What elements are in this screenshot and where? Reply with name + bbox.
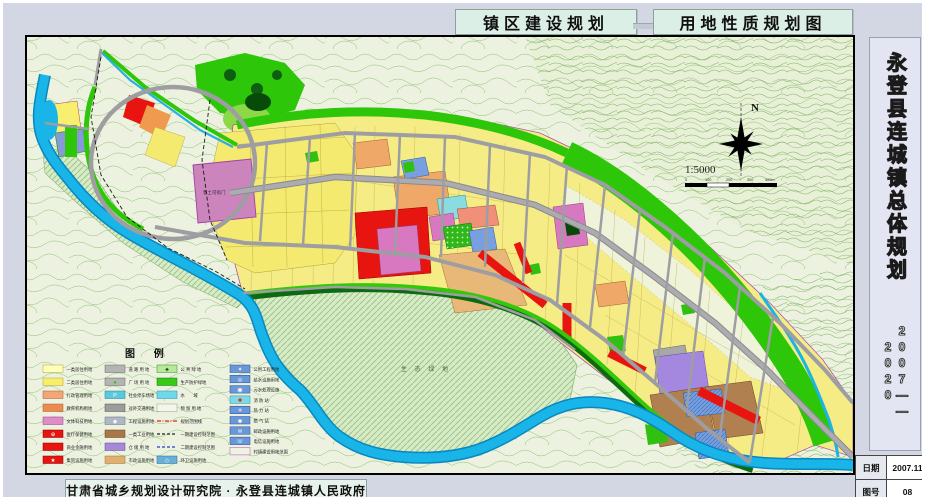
legend-entry: 生产防护绿地 xyxy=(157,378,207,386)
legend-label: 一类工业用地 xyxy=(129,431,155,438)
legend-label: 商业金融用地 xyxy=(67,444,93,451)
scale-tick: 400m xyxy=(765,178,775,182)
legend-label: 文体科技用地 xyxy=(67,418,93,425)
legend-label: 公 共 绿 地 xyxy=(181,366,202,373)
legend-entry: ✚消 防 站 xyxy=(230,396,269,404)
legend-swatch xyxy=(43,404,63,412)
legend-entry: 一类工业用地 xyxy=(105,430,155,438)
legend-swatch xyxy=(105,456,125,464)
legend-label: 行政管理用地 xyxy=(67,392,93,399)
legend-swatch-symbol: ⊕ xyxy=(51,432,56,438)
legend-swatch-symbol: ♣ xyxy=(165,367,169,373)
sheet-years-vertical: 2007——2020 xyxy=(881,299,909,444)
legend-label: 燃 气 站 xyxy=(254,418,270,425)
legend-title: 图 例 xyxy=(125,347,172,360)
legend-label: 电信设施用地 xyxy=(254,438,280,445)
legend-entry: 文体科技用地 xyxy=(43,417,93,425)
sheet-title-vertical: 永登县连城镇总体规划 xyxy=(881,43,910,291)
north-label: N xyxy=(751,102,759,114)
planning-map: 鲁土司衙门 xyxy=(27,37,853,473)
legend-label: 水 域 xyxy=(181,392,199,398)
sheet-number-label: 图号 xyxy=(856,480,886,500)
legend-entry: ✦公用工程用地 xyxy=(230,365,280,373)
legend-entry: ◉燃 气 站 xyxy=(230,417,269,425)
legend-label: 工程设施用地 xyxy=(129,418,155,425)
legend-swatch-symbol: ✉ xyxy=(238,429,243,435)
legend-label: 对外交通用地 xyxy=(129,405,155,412)
legend-label: 环卫设施用地 xyxy=(181,457,207,464)
legend-entry: 商业金融用地 xyxy=(43,443,93,451)
legend-swatch-symbol: ✚ xyxy=(238,397,243,404)
legend-label: 生产防护绿地 xyxy=(181,379,207,386)
legend-entry: ◇环卫设施用地 xyxy=(157,456,207,464)
scale-tick: 0 xyxy=(685,178,687,182)
legend-entry: ◎给水设施用地 xyxy=(230,375,280,383)
legend-label: 教育机构用地 xyxy=(67,405,93,412)
map-frame: 鲁土司衙门 xyxy=(25,35,855,475)
legend-entry: P社会停车场地 xyxy=(105,391,155,399)
legend-label: 公用工程用地 xyxy=(254,366,280,373)
legend-label: 道 路 用 地 xyxy=(129,366,150,373)
scale-text: 1:5000 xyxy=(685,164,716,176)
legend-swatch xyxy=(105,365,125,373)
legend-entry: 教育机构用地 xyxy=(43,404,93,412)
legend-label: 一类居住用地 xyxy=(67,366,93,373)
legend-swatch xyxy=(43,443,63,451)
legend-swatch-symbol: ▣ xyxy=(237,388,243,394)
legend-swatch xyxy=(157,404,177,412)
eco-green-label: 生 态 绿 地 xyxy=(401,365,451,373)
legend-label: 市政设施用地 xyxy=(129,457,155,464)
date-value: 2007.11 xyxy=(887,456,925,479)
legend-swatch-symbol: ● xyxy=(113,380,116,386)
legend-entry: ⊕医疗保健用地 xyxy=(43,430,93,438)
legend-label: 集贸设施用地 xyxy=(67,457,93,464)
legend-entry: 二类居住用地 xyxy=(43,378,93,386)
legend-label: 消 防 站 xyxy=(254,397,270,404)
title-box-landuse-plan: 用地性质规划图 xyxy=(653,9,853,35)
legend-entry: 行政管理用地 xyxy=(43,391,93,399)
legend-label: 污水处理设施 xyxy=(254,387,280,394)
legend-entry: ✳热 力 站 xyxy=(230,406,269,414)
legend-label: 邮政设施用地 xyxy=(254,428,280,435)
legend-swatch xyxy=(105,430,125,438)
scale-tick: 100 xyxy=(705,178,711,182)
plan-sheet: 镇区建设规划 用地性质规划图 xyxy=(0,0,925,500)
legend-entry: 对外交通用地 xyxy=(105,404,155,412)
legend-swatch-symbol: ✳ xyxy=(238,407,243,414)
legend-entry: 市政设施用地 xyxy=(105,456,155,464)
legend-label: 广 场 用 地 xyxy=(129,379,150,386)
date-label: 日期 xyxy=(856,456,886,479)
legend-swatch xyxy=(43,417,63,425)
legend-label: 社会停车场地 xyxy=(129,392,155,399)
title-block-table: 日期 2007.11 图号 08 xyxy=(855,455,925,500)
legend-swatch xyxy=(43,391,63,399)
legend-label: 热 力 站 xyxy=(254,407,270,414)
legend-swatch xyxy=(230,447,250,455)
legend-swatch xyxy=(43,378,63,386)
legend-label: 给水设施用地 xyxy=(254,376,280,383)
legend-swatch-symbol: ★ xyxy=(51,457,56,464)
scale-tick: 200 xyxy=(726,178,732,182)
title-box-construction-plan: 镇区建设规划 xyxy=(455,9,637,35)
legend-label: 二期建设控制范围 xyxy=(181,444,215,451)
legend-swatch xyxy=(105,404,125,412)
legend-swatch-symbol: ◎ xyxy=(238,377,243,383)
legend-entry: 村镇建设用地范围 xyxy=(230,447,288,455)
legend-label: 医疗保健用地 xyxy=(67,431,93,438)
credit-box: 甘肃省城乡规划设计研究院 · 永登县连城镇人民政府 xyxy=(65,479,367,500)
legend-entry: ★集贸设施用地 xyxy=(43,456,93,464)
legend-swatch-symbol: P xyxy=(113,393,117,399)
legend-label: 二类居住用地 xyxy=(67,379,93,386)
legend-entry: ▣污水处理设施 xyxy=(230,386,280,394)
sheet-number-value: 08 xyxy=(887,480,925,500)
legend-swatch xyxy=(105,443,125,451)
legend-swatch xyxy=(157,378,177,386)
legend-label: 仓 储 用 地 xyxy=(129,444,150,451)
legend-swatch xyxy=(157,391,177,399)
legend-swatch-symbol: ☏ xyxy=(237,438,245,445)
legend-label: 一期建设控制范围 xyxy=(181,431,215,438)
title-connector xyxy=(633,23,655,29)
legend-swatch-symbol: ✦ xyxy=(238,366,243,373)
legend-entry: ◆工程设施用地 xyxy=(105,417,155,425)
legend-entry: ✉邮政设施用地 xyxy=(230,427,280,435)
legend-entry: 一类居住用地 xyxy=(43,365,93,373)
legend-swatch-symbol: ◉ xyxy=(238,419,243,425)
legend-swatch xyxy=(43,365,63,373)
legend-label: 预 留 用 地 xyxy=(181,405,202,412)
legend-label: 规划范围线 xyxy=(181,418,203,425)
sidebar-title-panel: 永登县连城镇总体规划 2007——2020 xyxy=(869,37,921,451)
legend-entry: ☏电信设施用地 xyxy=(230,437,280,445)
scale-tick: 300 xyxy=(747,178,753,182)
legend-label: 村镇建设用地范围 xyxy=(254,448,288,455)
